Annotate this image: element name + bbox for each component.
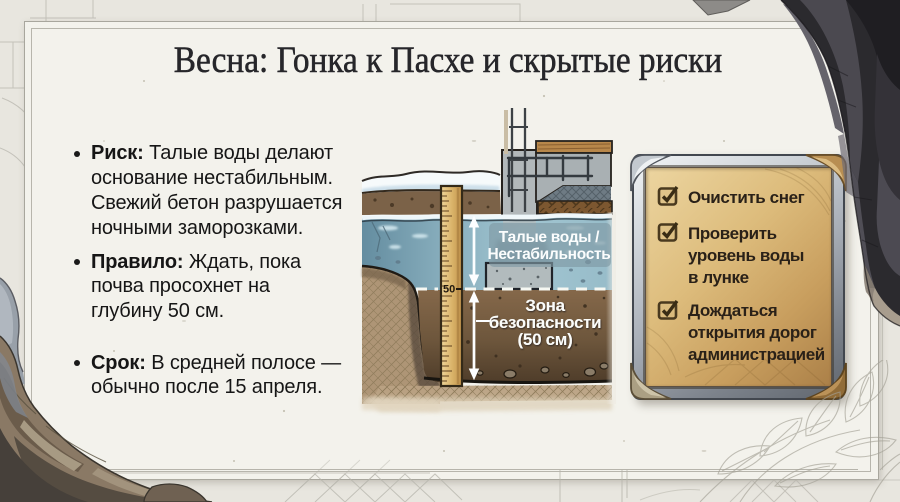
svg-text:(50 см): (50 см)	[518, 330, 573, 349]
svg-text:Нестабильность: Нестабильность	[487, 246, 610, 263]
svg-text:50: 50	[443, 284, 455, 296]
svg-text:Талые воды /: Талые воды /	[499, 229, 600, 246]
